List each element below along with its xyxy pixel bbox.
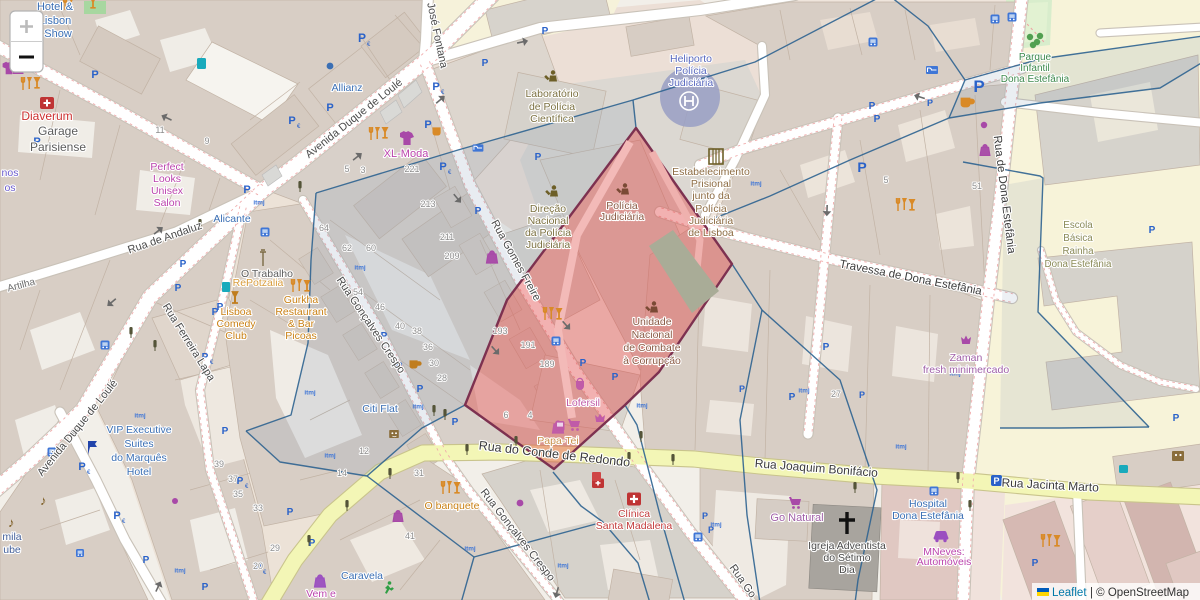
svg-text:P: P — [612, 372, 619, 383]
svg-text:41: 41 — [405, 531, 415, 541]
svg-text:64: 64 — [319, 223, 329, 233]
svg-text:37: 37 — [228, 474, 238, 484]
svg-text:nos: nos — [2, 167, 19, 179]
svg-text:213: 213 — [420, 199, 435, 209]
svg-text:P: P — [180, 259, 187, 270]
svg-text:Igreja Adventista: Igreja Adventista — [808, 540, 886, 552]
svg-text:P: P — [702, 511, 708, 521]
svg-text:P: P — [424, 119, 431, 131]
svg-text:Laboratório: Laboratório — [525, 88, 578, 100]
svg-text:junto da: junto da — [691, 190, 730, 202]
svg-text:60: 60 — [366, 243, 376, 253]
svg-text:os: os — [4, 182, 15, 194]
svg-text:itmj: itmj — [464, 545, 476, 552]
svg-text:P: P — [243, 184, 250, 196]
svg-text:Restaurant: Restaurant — [275, 306, 326, 318]
svg-text:Hotel &: Hotel & — [37, 1, 74, 13]
svg-text:Polícia: Polícia — [695, 203, 727, 215]
svg-text:Picoas: Picoas — [285, 330, 317, 342]
svg-text:Citi Flat: Citi Flat — [362, 403, 398, 415]
svg-text:Leaflet: Leaflet — [1052, 587, 1087, 599]
svg-text:20: 20 — [253, 561, 263, 571]
svg-text:de Polícia: de Polícia — [529, 101, 575, 113]
svg-text:à Corrupção: à Corrupção — [623, 355, 681, 367]
svg-text:36: 36 — [423, 342, 433, 352]
svg-text:Hospital: Hospital — [909, 498, 947, 510]
svg-text:211: 211 — [440, 232, 454, 242]
svg-text:191: 191 — [520, 340, 535, 350]
svg-text:221: 221 — [404, 164, 419, 174]
svg-text:XL-Moda: XL-Moda — [384, 148, 430, 160]
svg-text:Judiciária: Judiciária — [526, 239, 571, 251]
svg-text:itmj: itmj — [174, 567, 186, 574]
svg-text:33: 33 — [253, 503, 263, 513]
svg-text:itmj: itmj — [636, 402, 648, 409]
svg-text:P: P — [143, 555, 150, 566]
svg-text:P: P — [222, 426, 229, 437]
svg-text:P: P — [452, 417, 459, 428]
svg-text:P: P — [417, 384, 424, 395]
svg-text:P: P — [432, 81, 439, 93]
svg-text:itmj: itmj — [253, 199, 265, 206]
svg-text:P: P — [113, 510, 120, 522]
svg-text:Polícia: Polícia — [675, 65, 707, 77]
svg-text:do Marquês: do Marquês — [111, 452, 166, 464]
svg-text:Dona Estefânia: Dona Estefânia — [1045, 259, 1113, 270]
svg-text:62: 62 — [342, 243, 352, 253]
svg-text:de Combate: de Combate — [623, 342, 680, 354]
svg-text:51: 51 — [972, 181, 982, 191]
svg-text:Alicante: Alicante — [213, 213, 251, 225]
svg-text:♪: ♪ — [40, 493, 47, 508]
svg-text:itmj: itmj — [710, 521, 722, 528]
svg-text:5: 5 — [344, 164, 349, 174]
svg-text:46: 46 — [375, 302, 385, 312]
svg-text:P: P — [326, 102, 333, 114]
svg-text:Garage: Garage — [38, 124, 78, 138]
svg-text:P: P — [287, 507, 294, 518]
svg-text:Unidade: Unidade — [632, 316, 671, 328]
svg-text:Santa Madalena: Santa Madalena — [596, 520, 673, 532]
svg-text:itmj: itmj — [895, 443, 907, 450]
svg-text:VIP Executive: VIP Executive — [106, 424, 171, 436]
svg-text:Rainha: Rainha — [1062, 246, 1094, 257]
svg-text:de Lisboa: de Lisboa — [688, 227, 734, 239]
svg-text:Comedy: Comedy — [216, 318, 256, 330]
svg-text:ube: ube — [3, 544, 21, 556]
svg-text:P: P — [175, 283, 182, 294]
svg-text:Estabelecimento: Estabelecimento — [672, 166, 750, 178]
svg-text:P: P — [202, 582, 209, 593]
svg-text:Heliporto: Heliporto — [670, 53, 712, 65]
svg-text:Científica: Científica — [530, 113, 574, 125]
svg-text:itmj: itmj — [304, 389, 316, 396]
svg-text:P: P — [580, 358, 587, 369]
svg-text:P: P — [1032, 558, 1039, 569]
svg-text:Dia: Dia — [839, 564, 855, 576]
svg-text:39: 39 — [214, 459, 224, 469]
svg-text:P: P — [358, 31, 366, 45]
svg-text:Parisiense: Parisiense — [30, 140, 86, 154]
svg-text:P: P — [482, 58, 489, 69]
svg-text:6: 6 — [503, 410, 508, 420]
svg-text:Lisbon: Lisbon — [39, 15, 71, 27]
svg-text:Zaman: Zaman — [950, 352, 983, 364]
svg-text:P: P — [739, 384, 745, 394]
svg-text:27: 27 — [831, 389, 841, 399]
svg-text:38: 38 — [412, 326, 422, 336]
svg-text:5: 5 — [883, 175, 888, 185]
svg-text:itmj: itmj — [324, 452, 336, 459]
svg-text:P: P — [542, 26, 549, 37]
svg-text:fresh minimercado: fresh minimercado — [923, 364, 1010, 376]
svg-text:Nacional: Nacional — [528, 215, 569, 227]
svg-text:28: 28 — [437, 373, 447, 383]
svg-text:RePotzalia: RePotzalia — [233, 277, 284, 289]
svg-text:P: P — [439, 161, 446, 173]
svg-text:P: P — [874, 114, 881, 125]
svg-text:♪: ♪ — [8, 515, 15, 530]
svg-text:itmj: itmj — [412, 403, 424, 410]
svg-text:Clínica: Clínica — [618, 508, 650, 520]
svg-text:29: 29 — [270, 543, 280, 553]
svg-text:Vem e: Vem e — [306, 588, 336, 600]
svg-text:31: 31 — [414, 468, 424, 478]
svg-text:Infantil: Infantil — [1020, 63, 1049, 74]
svg-text:P: P — [789, 392, 796, 403]
svg-text:O banquete: O banquete — [425, 500, 480, 512]
svg-text:Dona Estefânia: Dona Estefânia — [892, 510, 964, 522]
svg-text:35: 35 — [233, 489, 243, 499]
svg-text:193: 193 — [492, 326, 507, 336]
svg-text:P: P — [859, 390, 865, 400]
svg-text:Judiciária: Judiciária — [669, 77, 714, 89]
svg-text:209: 209 — [444, 251, 459, 261]
svg-text:itmj: itmj — [750, 180, 762, 187]
svg-text:itmj: itmj — [354, 264, 366, 271]
svg-text:3: 3 — [360, 165, 365, 175]
svg-text:itmj: itmj — [134, 412, 146, 419]
svg-text:11: 11 — [155, 125, 164, 135]
svg-text:Caravela: Caravela — [341, 570, 383, 582]
svg-text:P: P — [869, 101, 876, 112]
svg-text:do Sétimo: do Sétimo — [823, 552, 870, 564]
svg-text:30: 30 — [429, 358, 439, 368]
svg-text:Parque: Parque — [1019, 52, 1052, 63]
svg-text:Go Natural: Go Natural — [770, 512, 823, 524]
svg-text:Unisex: Unisex — [151, 185, 184, 197]
svg-text:Perfect: Perfect — [150, 161, 183, 173]
svg-text:P: P — [823, 342, 830, 353]
svg-text:Automóveis: Automóveis — [917, 556, 972, 568]
svg-text:4: 4 — [527, 410, 532, 420]
svg-text:Suites: Suites — [124, 438, 153, 450]
svg-text:P: P — [993, 476, 999, 486]
svg-text:14: 14 — [337, 468, 347, 478]
svg-text:mila: mila — [2, 531, 21, 543]
svg-text:Lofersil: Lofersil — [566, 397, 600, 409]
svg-text:P: P — [927, 98, 933, 108]
svg-text:P: P — [475, 206, 482, 217]
svg-text:P: P — [857, 159, 866, 175]
svg-text:Lisboa: Lisboa — [221, 306, 252, 318]
svg-text:Allianz: Allianz — [332, 82, 363, 94]
svg-text:| © OpenStreetMap: | © OpenStreetMap — [1090, 587, 1189, 599]
svg-text:Básica: Básica — [1063, 233, 1093, 244]
svg-text:Diaverum: Diaverum — [21, 109, 72, 123]
svg-text:Looks: Looks — [153, 173, 181, 185]
svg-text:itmj: itmj — [557, 562, 569, 569]
svg-text:12: 12 — [359, 446, 369, 456]
svg-text:P: P — [973, 77, 984, 96]
svg-text:P: P — [1149, 225, 1156, 236]
svg-text:Judiciária: Judiciária — [689, 215, 734, 227]
svg-text:P: P — [78, 461, 85, 473]
svg-text:P: P — [535, 152, 542, 163]
svg-text:P: P — [91, 69, 98, 81]
svg-text:Dona Estefânia: Dona Estefânia — [1001, 74, 1070, 85]
svg-text:itmj: itmj — [798, 387, 810, 394]
svg-text:Papa-Tei: Papa-Tei — [537, 435, 578, 447]
svg-text:9: 9 — [204, 136, 209, 146]
svg-text:Nacional: Nacional — [632, 329, 673, 341]
svg-text:Judiciária: Judiciária — [600, 211, 645, 223]
svg-text:Club: Club — [225, 330, 247, 342]
svg-text:Salon: Salon — [154, 197, 181, 209]
svg-text:P: P — [1173, 413, 1180, 424]
svg-text:Gurkha: Gurkha — [284, 294, 319, 306]
svg-text:& Bar: & Bar — [288, 318, 315, 330]
svg-text:54: 54 — [353, 287, 363, 297]
svg-text:da Polícia: da Polícia — [525, 227, 571, 239]
svg-text:40: 40 — [395, 321, 405, 331]
svg-text:Prisional: Prisional — [691, 178, 731, 190]
svg-text:Escola: Escola — [1063, 220, 1093, 231]
svg-text:Direção: Direção — [530, 203, 566, 215]
svg-text:P: P — [288, 115, 295, 127]
svg-text:189: 189 — [539, 359, 554, 369]
svg-text:Hotel: Hotel — [127, 466, 152, 478]
